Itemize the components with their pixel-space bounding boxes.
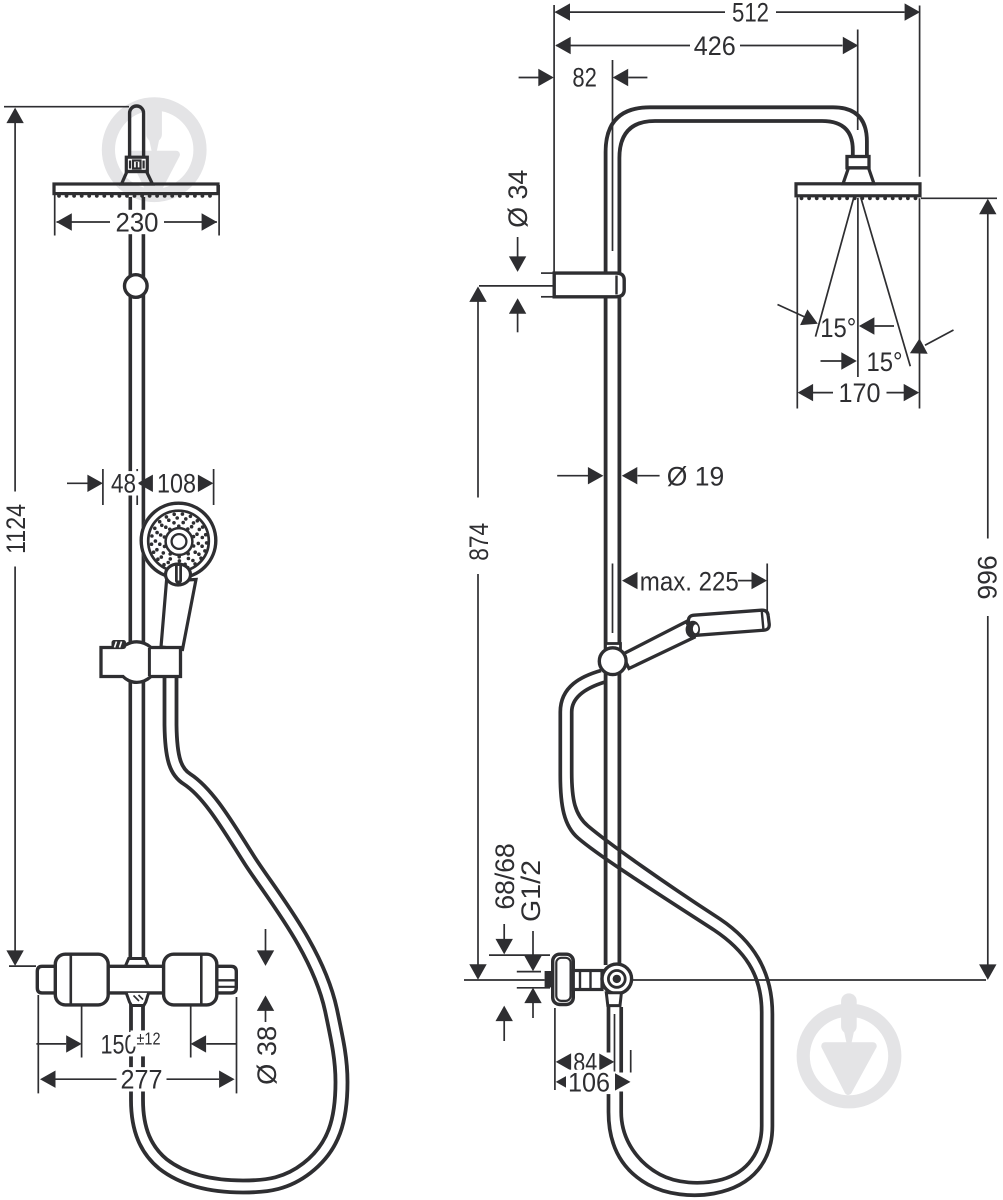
svg-text:max. 225: max. 225 <box>640 566 739 596</box>
svg-text:874: 874 <box>464 523 494 561</box>
svg-text:106: 106 <box>568 1067 610 1097</box>
svg-text:512: 512 <box>732 0 769 28</box>
svg-text:15°: 15° <box>867 347 903 377</box>
svg-text:±12: ±12 <box>137 1029 161 1049</box>
svg-text:170: 170 <box>839 378 881 408</box>
svg-text:48: 48 <box>111 469 136 499</box>
svg-text:Ø 34: Ø 34 <box>503 170 533 228</box>
svg-text:277: 277 <box>121 1065 163 1095</box>
svg-text:82: 82 <box>572 63 597 93</box>
svg-text:230: 230 <box>116 207 159 237</box>
svg-text:108: 108 <box>157 469 196 499</box>
svg-text:996: 996 <box>973 555 1003 599</box>
svg-text:Ø 19: Ø 19 <box>667 461 724 491</box>
svg-text:426: 426 <box>694 31 736 61</box>
svg-text:G1/2: G1/2 <box>516 860 546 922</box>
svg-text:Ø 38: Ø 38 <box>252 1026 282 1085</box>
svg-text:1124: 1124 <box>1 504 31 554</box>
svg-text:15°: 15° <box>820 313 856 343</box>
